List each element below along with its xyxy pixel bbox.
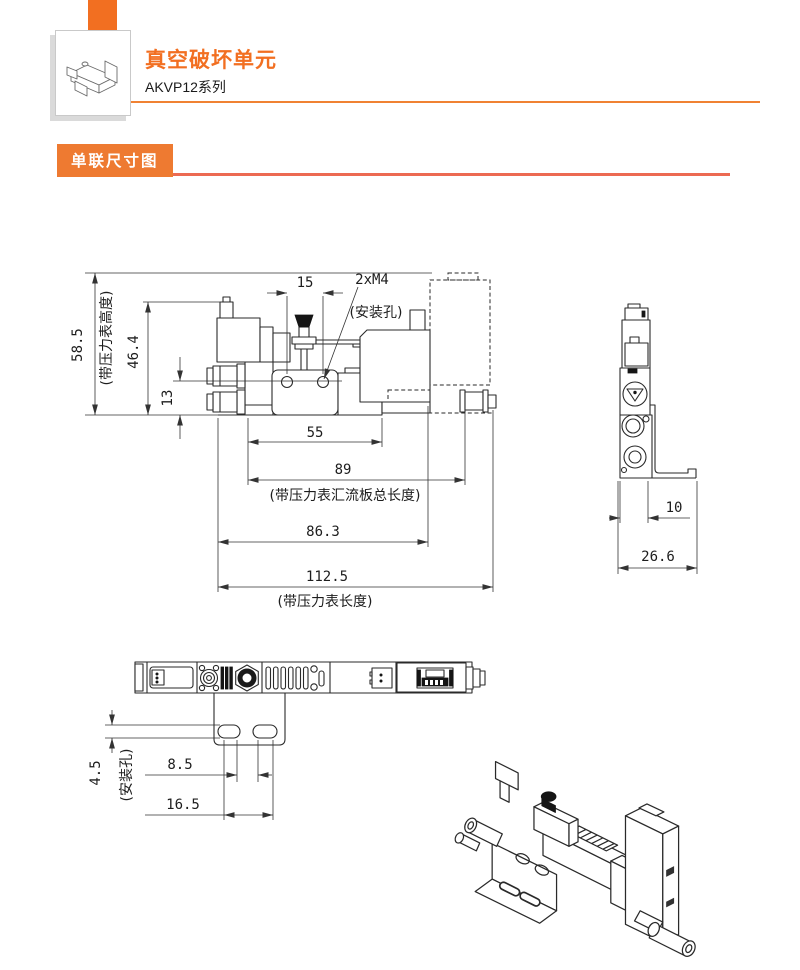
bottom-view-dimensions: 4.5 (安装孔) 8.5 16.5 [88, 710, 273, 820]
dim-4-5-note: (安装孔) [119, 749, 135, 802]
dimension-drawing: 58.5 (带压力表高度) 46.4 13 15 2xM4 (安装孔) 55 8… [40, 240, 760, 970]
dim-86-3: 86.3 [306, 524, 340, 540]
front-valve-lower-block [245, 362, 273, 415]
front-connector [220, 302, 233, 318]
dim-16-5: 16.5 [166, 797, 200, 813]
side-upper-body [622, 320, 650, 368]
header-rule [108, 101, 760, 103]
dim-55: 55 [307, 425, 324, 441]
product-thumbnail-box [55, 30, 131, 116]
front-ejector-connector [410, 310, 425, 330]
front-ejector-body [360, 330, 430, 402]
dim-112-5-note: (带压力表长度) [278, 594, 373, 610]
page-corner-tab [88, 0, 117, 30]
dim-46-4: 46.4 [126, 335, 142, 369]
bottom-view: 4.5 (安装孔) 8.5 16.5 [88, 662, 485, 820]
side-view: 10 26.6 [609, 304, 697, 574]
bottom-right-fitting [466, 667, 473, 689]
front-connector-nub [223, 297, 230, 302]
dim-15: 15 [297, 275, 314, 291]
dim-112-5: 112.5 [306, 569, 348, 585]
dim-58-5: 58.5 [70, 328, 86, 362]
dim-8-5: 8.5 [167, 757, 192, 773]
mounting-hole-left [282, 377, 293, 388]
side-view-dimensions: 10 26.6 [609, 481, 697, 574]
dim-2xM4-note: (安装孔) [350, 305, 403, 321]
product-thumbnail-icon [61, 43, 125, 103]
pressure-gauge-dashed-outline [430, 280, 490, 385]
dim-4-5: 4.5 [88, 760, 104, 785]
isometric-view [454, 762, 698, 959]
page-title: 真空破坏单元 [145, 44, 277, 74]
dim-10: 10 [666, 500, 683, 516]
page-subtitle: AKVP12系列 [145, 77, 226, 97]
section-header: 单联尺寸图 [57, 144, 173, 177]
bottom-slot-left [218, 725, 240, 738]
front-mounting-plate [272, 370, 338, 415]
dim-89-note: (带压力表汇流板总长度) [270, 488, 421, 504]
side-bracket [650, 405, 696, 478]
dim-26-6: 26.6 [641, 549, 675, 565]
dim-89: 89 [335, 462, 352, 478]
dim-2xM4: 2xM4 [355, 272, 389, 288]
dim-13: 13 [160, 390, 176, 407]
mounting-hole-right [318, 377, 329, 388]
front-adjust-knob [292, 315, 316, 370]
front-solenoid-body [217, 318, 260, 362]
front-view: 58.5 (带压力表高度) 46.4 13 15 2xM4 (安装孔) 55 8… [70, 272, 496, 610]
front-left-fittings [207, 364, 245, 414]
dim-58-5-note: (带压力表高度) [98, 291, 115, 386]
bottom-slot-right [253, 725, 277, 738]
